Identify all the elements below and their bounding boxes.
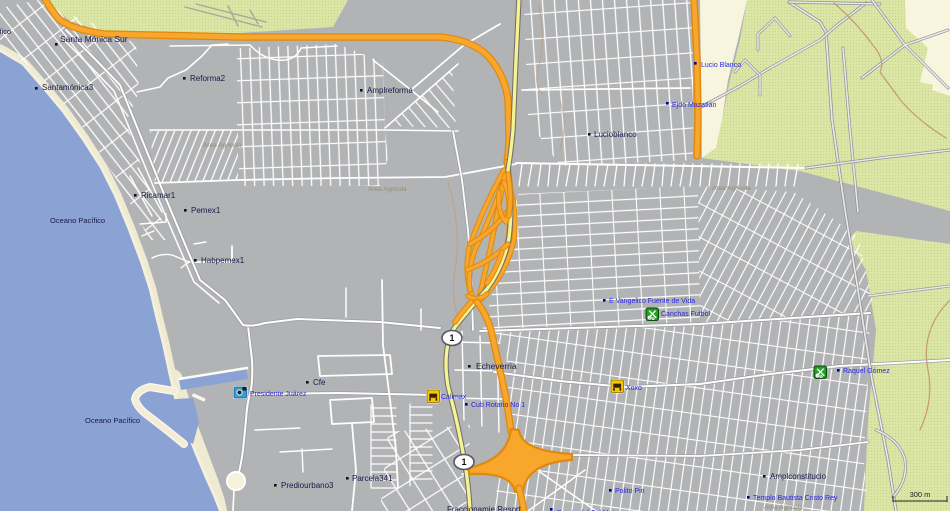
svg-text:Cfe: Cfe bbox=[313, 378, 326, 387]
svg-text:E Vangelico Fuente de Vida: E Vangelico Fuente de Vida bbox=[609, 298, 695, 305]
svg-text:Canchas Futbol: Canchas Futbol bbox=[661, 311, 710, 318]
svg-text:300 m: 300 m bbox=[910, 490, 931, 499]
svg-text:Amplreforma: Amplreforma bbox=[367, 86, 413, 95]
svg-text:Fraccionamie Resort: Fraccionamie Resort bbox=[447, 505, 522, 511]
svg-text:Lucio Blanco: Lucio Blanco bbox=[701, 62, 741, 69]
svg-text:Oceano Pacífico: Oceano Pacífico bbox=[50, 216, 105, 225]
svg-text:Ejdo Mazatlán: Ejdo Mazatlán bbox=[672, 102, 716, 109]
svg-text:Area Agricola: Area Agricola bbox=[203, 142, 242, 149]
svg-text:Parcela341: Parcela341 bbox=[352, 474, 393, 483]
svg-text:Raquel Gómez: Raquel Gómez bbox=[843, 368, 890, 375]
svg-text:Ricamar1: Ricamar1 bbox=[141, 191, 176, 200]
svg-text:Reforma2: Reforma2 bbox=[190, 74, 226, 83]
svg-text:Area Agricola: Area Agricola bbox=[368, 186, 407, 193]
svg-text:Lucioblanco: Lucioblanco bbox=[594, 130, 637, 139]
svg-text:Templo Bautista Cristo Rey: Templo Bautista Cristo Rey bbox=[753, 495, 838, 502]
svg-text:Santamónica3: Santamónica3 bbox=[42, 83, 94, 92]
svg-text:1: 1 bbox=[449, 333, 454, 343]
svg-text:Area Agricola: Area Agricola bbox=[764, 504, 803, 511]
svg-text:Santa Mónica Sur: Santa Mónica Sur bbox=[60, 34, 128, 44]
svg-text:Prediourbano3: Prediourbano3 bbox=[281, 481, 334, 490]
svg-text:Polito Pin: Polito Pin bbox=[615, 488, 645, 495]
svg-text:Habpemex1: Habpemex1 bbox=[201, 256, 245, 265]
svg-text:Xoxo: Xoxo bbox=[626, 385, 642, 392]
svg-text:Calimax: Calimax bbox=[441, 394, 467, 401]
svg-text:Cub Rotario No 1: Cub Rotario No 1 bbox=[471, 402, 525, 409]
svg-text:Presidente Juárez: Presidente Juárez bbox=[250, 391, 307, 398]
svg-text:Amplconstitucio: Amplconstitucio bbox=[770, 472, 827, 481]
svg-text:Area Agricola: Area Agricola bbox=[712, 185, 751, 192]
svg-text:Echeverria: Echeverria bbox=[476, 361, 517, 371]
svg-text:1: 1 bbox=[461, 457, 466, 467]
svg-text:Oceano Pacífico: Oceano Pacífico bbox=[85, 416, 140, 425]
svg-text:Pemex1: Pemex1 bbox=[191, 206, 221, 215]
svg-text:Oceano Pacífico: Oceano Pacífico bbox=[0, 27, 11, 36]
